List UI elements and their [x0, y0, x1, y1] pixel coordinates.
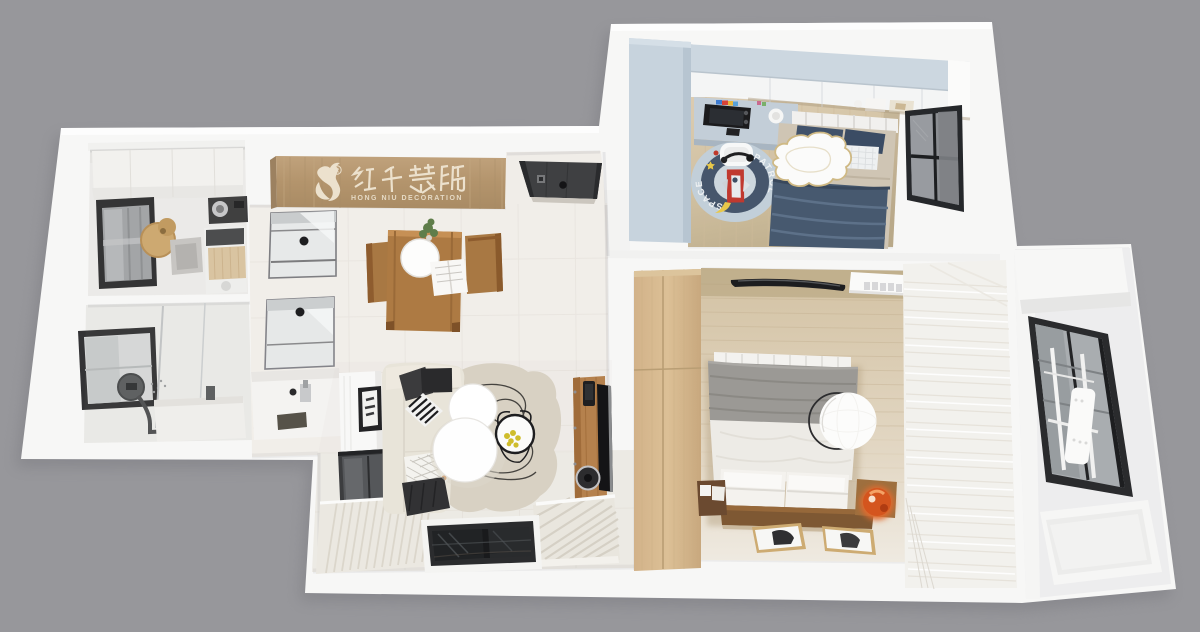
svg-text:R: R [335, 169, 340, 175]
svg-text:HONG NIU DECORATION: HONG NIU DECORATION [351, 195, 463, 202]
